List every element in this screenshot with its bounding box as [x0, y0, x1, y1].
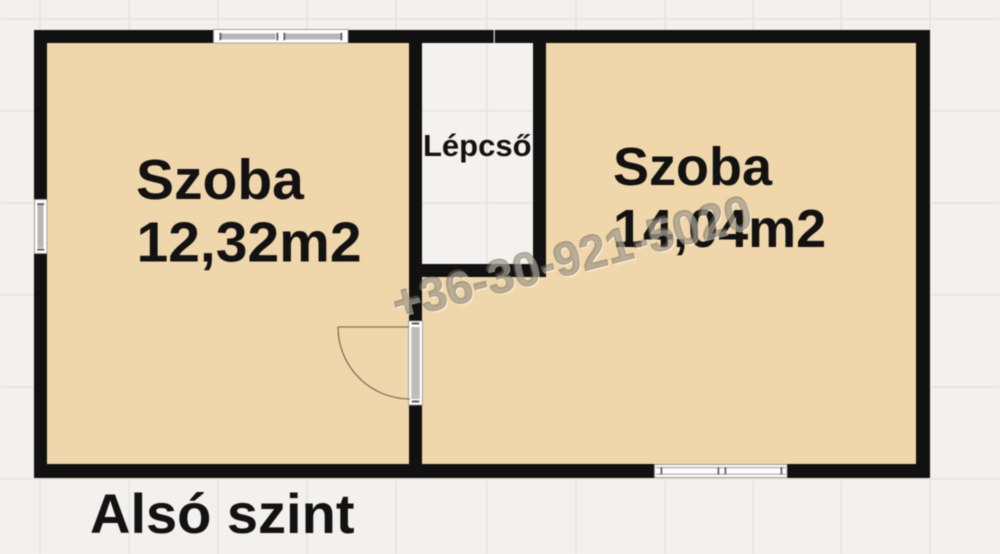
svg-text:Lépcső: Lépcső [423, 128, 532, 163]
svg-text:Szoba: Szoba [613, 137, 773, 197]
svg-text:Szoba: Szoba [136, 148, 305, 212]
svg-text:Alsó szint: Alsó szint [90, 482, 354, 545]
svg-text:12,32m2: 12,32m2 [137, 211, 362, 275]
